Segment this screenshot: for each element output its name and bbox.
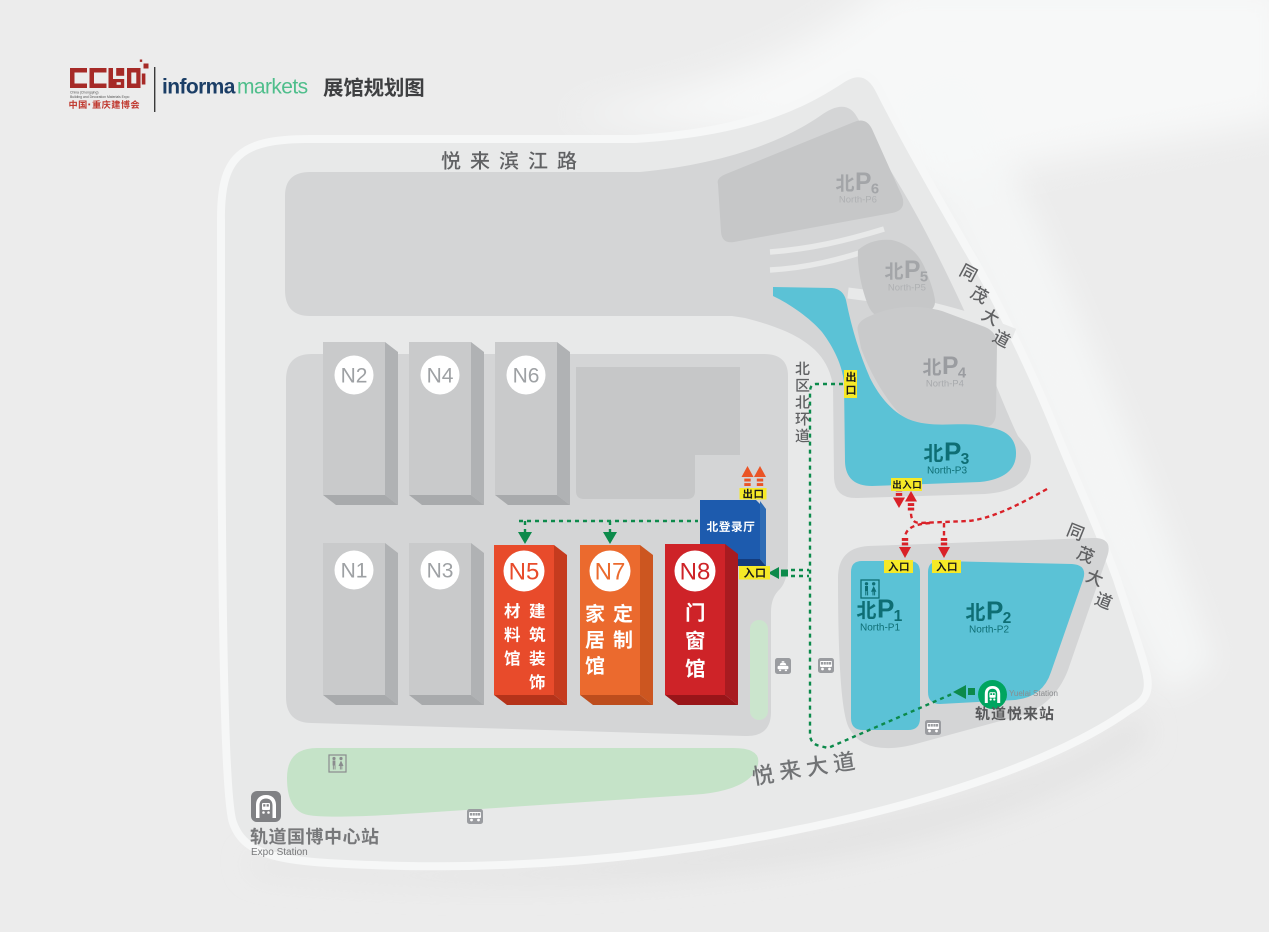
svg-text:North-P3: North-P3	[927, 465, 967, 476]
svg-text:N5: N5	[509, 558, 540, 585]
svg-text:Yuelai Station: Yuelai Station	[1009, 689, 1058, 698]
svg-text:P: P	[855, 169, 871, 196]
svg-text:P: P	[986, 596, 1003, 626]
svg-text:North-P5: North-P5	[888, 282, 926, 293]
svg-text:N7: N7	[595, 558, 626, 585]
svg-text:China (Chongqing): China (Chongqing)	[70, 91, 98, 95]
svg-text:North-P4: North-P4	[926, 378, 964, 389]
svg-text:North-P2: North-P2	[969, 624, 1009, 635]
svg-text:P: P	[942, 353, 958, 380]
svg-text:N3: N3	[427, 559, 454, 582]
svg-text:P: P	[904, 257, 920, 284]
svg-text:N8: N8	[680, 558, 711, 585]
svg-text:N1: N1	[341, 559, 368, 582]
svg-text:Expo Station: Expo Station	[251, 847, 308, 858]
svg-text:North-P6: North-P6	[839, 194, 877, 205]
svg-text:N2: N2	[341, 364, 368, 387]
svg-text:informa: informa	[162, 76, 236, 99]
svg-text:Building and Decoration Materi: Building and Decoration Materials Expo	[70, 95, 129, 99]
svg-text:markets: markets	[237, 76, 308, 99]
svg-text:N6: N6	[513, 364, 540, 387]
svg-text:P: P	[944, 437, 961, 467]
svg-text:North-P1: North-P1	[860, 622, 900, 633]
svg-text:N4: N4	[427, 364, 454, 387]
